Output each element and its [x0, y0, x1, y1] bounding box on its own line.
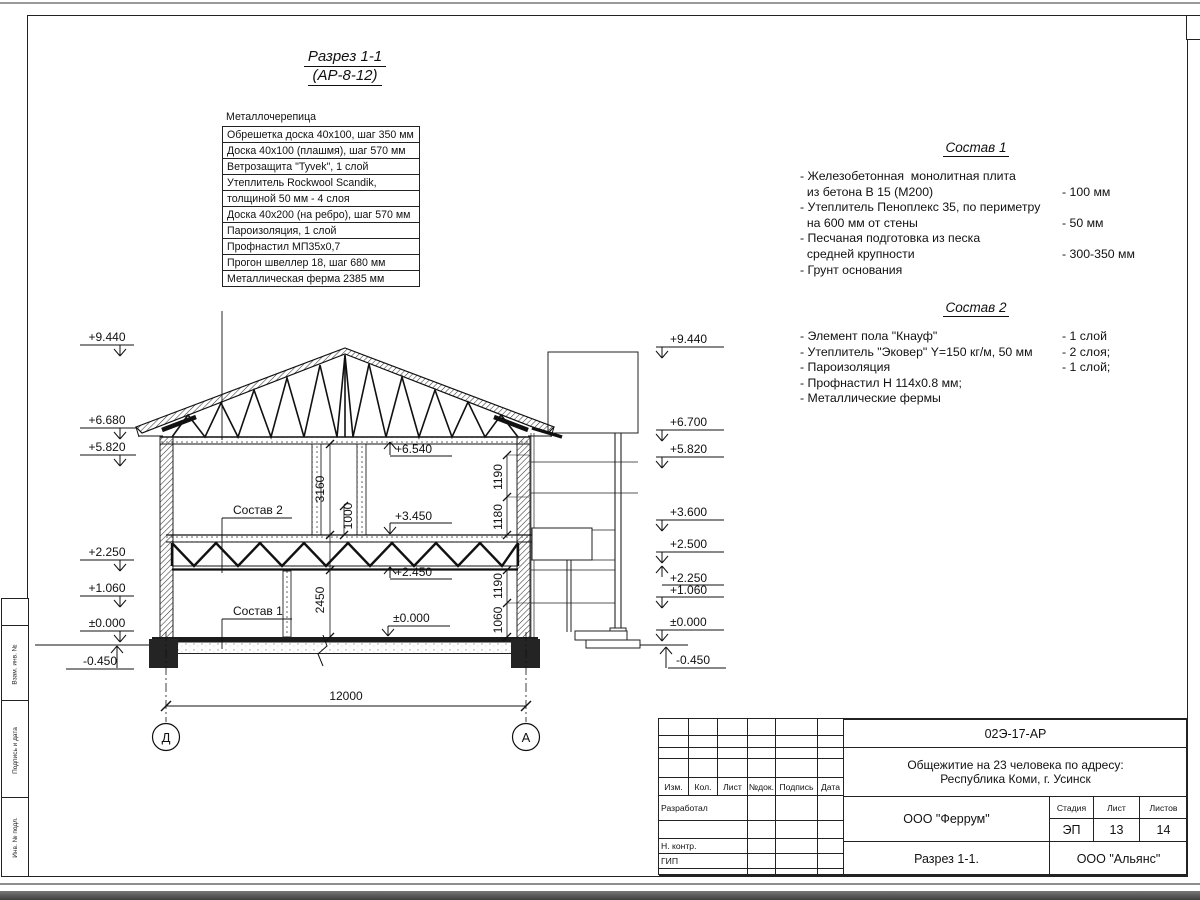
stage-value-cell: ЭП	[1049, 818, 1094, 842]
leaders	[222, 311, 292, 649]
doc-number-cell: 02Э-17-АР	[843, 719, 1188, 748]
roof	[136, 348, 562, 444]
dim-span-12000: 12000	[329, 689, 363, 703]
elev-right-3600: +3.600	[670, 505, 707, 519]
change-log-grid	[659, 719, 844, 778]
partition-1f	[283, 571, 291, 637]
row-ncontr: Н. контр.	[659, 839, 748, 854]
elev-right-1060: +1.060	[670, 583, 707, 597]
sheets-value-cell: 14	[1139, 818, 1188, 842]
drawing-name-cell: Разрез 1-1.	[843, 841, 1050, 876]
signature-grid: Разработал Н. контр. ГИП	[659, 796, 844, 876]
dim-1190-low: 1190	[491, 573, 505, 599]
sheet-value-cell: 13	[1093, 818, 1140, 842]
row-developed: Разработал	[659, 796, 748, 821]
foundation-left	[149, 639, 178, 668]
elev-right-6700: +6.700	[670, 415, 707, 429]
elev-left-5820: +5.820	[88, 440, 125, 454]
stage-label-cell: Стадия	[1049, 796, 1094, 819]
floor-truss-webs	[172, 543, 518, 566]
annex-elevation	[531, 352, 640, 648]
partition-2f-b	[357, 444, 366, 535]
elev-int-2450: +2.450	[395, 565, 432, 579]
elev-right-0000: ±0.000	[670, 615, 707, 629]
dim-2450: 2450	[313, 586, 327, 613]
dim-1190-up: 1190	[491, 464, 505, 490]
contractor-cell: ООО "Альянс"	[1049, 841, 1188, 876]
dim-1180: 1180	[491, 504, 505, 530]
elev-int-0000: ±0.000	[393, 611, 430, 625]
dim-3160: 3160	[313, 475, 327, 502]
row-gip: ГИП	[659, 854, 748, 869]
foundation-right	[511, 639, 540, 668]
callout-sostav1: Состав 1	[233, 604, 283, 618]
dim-1000: 1000	[341, 502, 355, 529]
elev-left-9440: +9.440	[88, 330, 125, 344]
dim-1060: 1060	[491, 606, 505, 633]
elev-right-9440: +9.440	[670, 332, 707, 346]
sheet-label-cell: Лист	[1093, 796, 1140, 819]
drawing-sheet: Взам. инв. № Подпись и дата Инв. № подл.…	[0, 0, 1200, 900]
elev-left-2250: +2.250	[88, 545, 125, 559]
elev-int-3450: +3.450	[395, 509, 432, 523]
project-name-cell: Общежитие на 23 человека по адресу: Респ…	[843, 747, 1188, 797]
elev-left-1060: +1.060	[88, 581, 125, 595]
elev-right-5820: +5.820	[670, 442, 707, 456]
elev-right-2500: +2.500	[670, 537, 707, 551]
elev-int-6540: +6.540	[395, 442, 432, 456]
sheets-label-cell: Листов	[1139, 796, 1188, 819]
org-cell: ООО "Феррум"	[843, 796, 1050, 842]
elev-left-m0450: -0.450	[83, 654, 117, 668]
title-block: Изм. Кол. Лист №док. Подпись Дата Разраб…	[658, 718, 1187, 875]
callout-sostav2: Состав 2	[233, 503, 283, 517]
interfloor-structure	[166, 535, 532, 570]
elev-left-6680: +6.680	[88, 413, 125, 427]
change-log-header: Изм. Кол. Лист №док. Подпись Дата	[659, 778, 844, 796]
axis-label-a: А	[522, 730, 531, 745]
elev-right-m0450: -0.450	[676, 653, 710, 667]
elev-left-0000: ±0.000	[89, 616, 126, 630]
axis-label-d: Д	[162, 730, 171, 745]
